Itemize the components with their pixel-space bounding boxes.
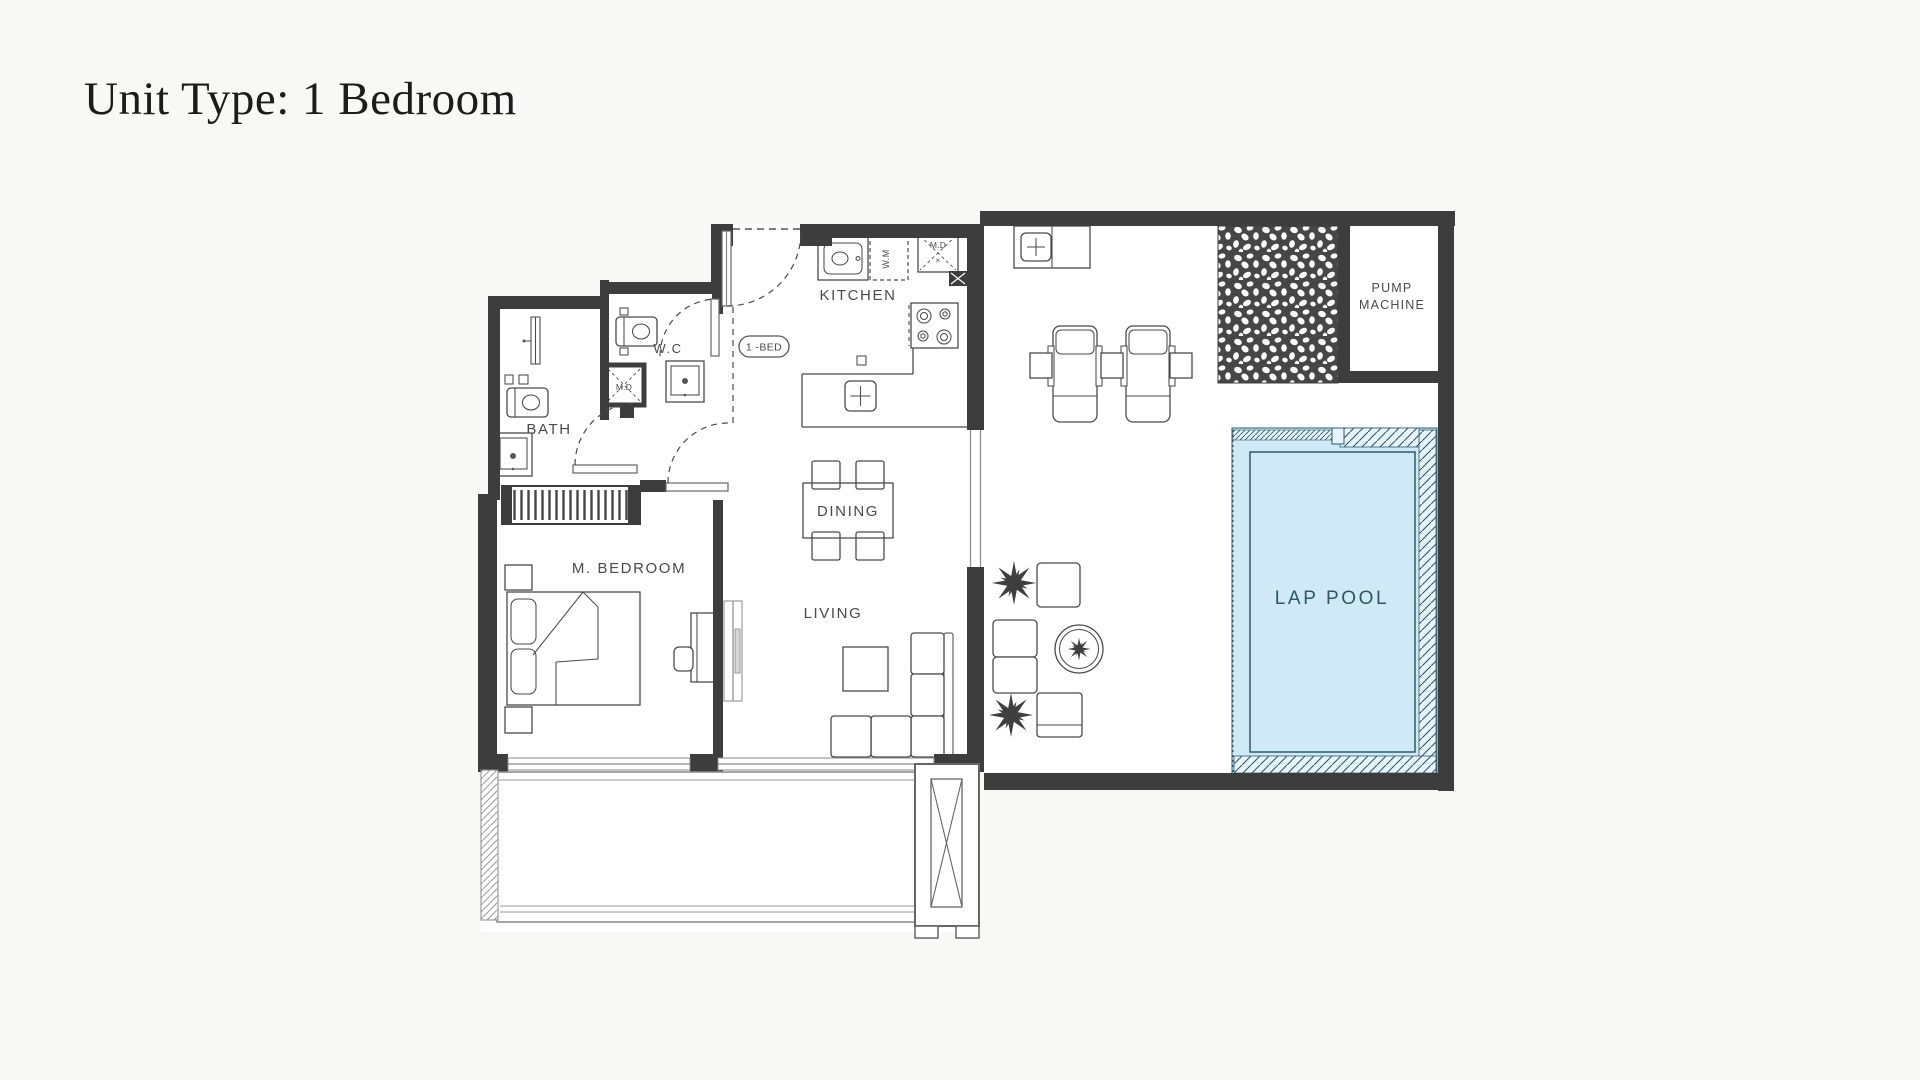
stove <box>909 303 958 348</box>
pebble-area <box>1218 226 1338 383</box>
side-table <box>1170 353 1192 378</box>
duct-kitchen-x: × <box>935 255 940 265</box>
nightstand <box>505 707 532 733</box>
desk-chair <box>674 647 693 671</box>
bath-vanity <box>495 433 532 476</box>
washing-machine: W.M <box>870 237 908 280</box>
kitchen-label: KITCHEN <box>819 287 896 304</box>
ottoman-table <box>1037 693 1082 737</box>
bath-label: BATH <box>526 421 571 438</box>
duct-kitchen-label: M.D <box>930 240 946 250</box>
bedroom-label: M. BEDROOM <box>572 560 686 577</box>
wc-label: W.C <box>653 341 682 356</box>
plant <box>989 693 1033 737</box>
sliding-door <box>724 601 742 701</box>
lap-pool-label: LAP POOL <box>1275 588 1389 609</box>
balcony-brace-column <box>915 764 979 938</box>
side-table <box>1030 353 1052 378</box>
wardrobe <box>502 486 640 524</box>
pump-room-label-2: MACHINE <box>1359 298 1425 312</box>
balcony-glass-door <box>508 758 934 770</box>
coffee-table <box>843 647 888 691</box>
living-label: LIVING <box>804 605 863 622</box>
duct-kitchen: M.D × <box>918 234 958 272</box>
plant <box>992 561 1036 605</box>
round-table <box>1055 625 1103 673</box>
floor-plan: LAP POOL <box>0 0 1920 1080</box>
lap-pool: LAP POOL <box>1232 428 1437 775</box>
side-table <box>1101 353 1123 378</box>
terrace-window <box>967 430 984 567</box>
bed <box>507 592 640 705</box>
sun-lounger <box>1048 326 1102 422</box>
sun-lounger <box>1121 326 1175 422</box>
unit-door-tag: 1 -BED <box>739 336 789 357</box>
balcony-column <box>481 770 498 920</box>
page: Unit Type: 1 Bedroom <box>0 0 1920 1080</box>
wc-duct-label: M.D <box>616 382 632 392</box>
dining-label: DINING <box>817 503 879 520</box>
outdoor-counter <box>1014 226 1090 268</box>
wc-vanity <box>666 361 704 402</box>
nightstand <box>505 565 532 590</box>
unit-door-tag-label: 1 -BED <box>746 342 782 354</box>
balcony <box>481 764 979 938</box>
vent-icon <box>949 271 967 286</box>
pump-room-label-1: PUMP <box>1372 281 1413 295</box>
wc-duct: M.D <box>604 365 644 405</box>
washing-machine-label: W.M <box>881 249 891 268</box>
